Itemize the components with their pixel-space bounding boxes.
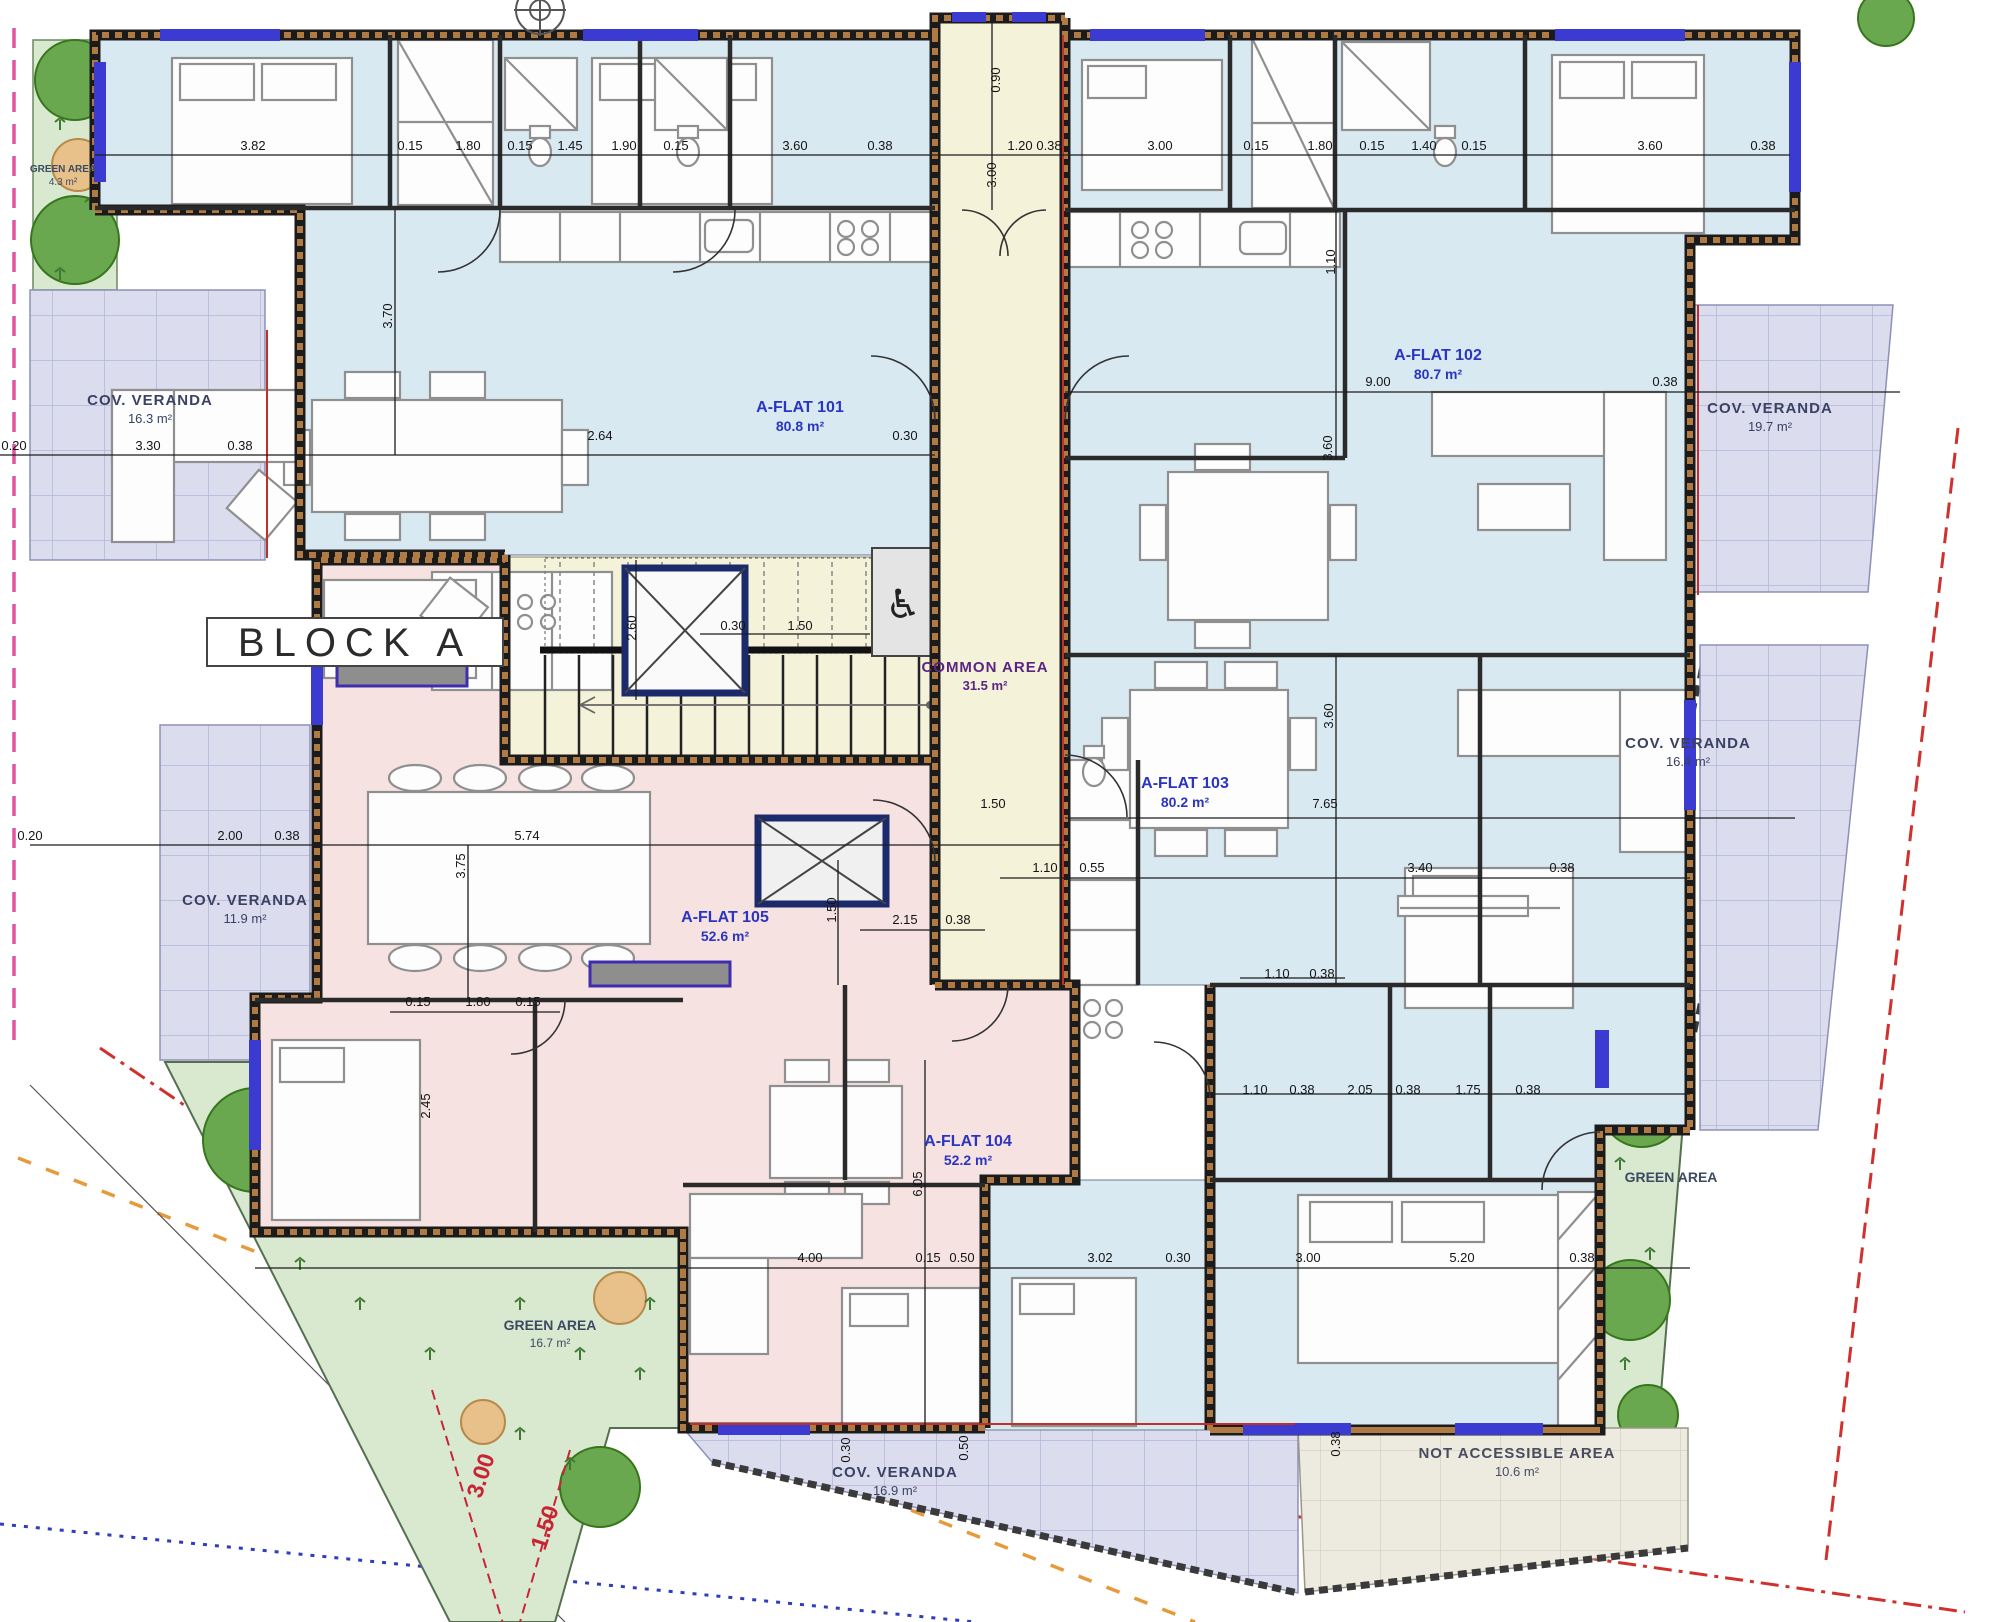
dimension-label: 0.15 — [915, 1250, 940, 1265]
dimension-label: 2.15 — [892, 912, 917, 927]
dimension-label: 1.20 — [1007, 138, 1032, 153]
dimension-label: 0.20 — [17, 828, 42, 843]
common-area-value: 31.5 m² — [963, 678, 1008, 693]
dimension-label: 3.60 — [1637, 138, 1662, 153]
boundary-red-right — [1826, 428, 1958, 1560]
veranda-bottom — [683, 1428, 1298, 1593]
flat-label: A-FLAT 104 — [924, 1133, 1012, 1150]
bed — [1298, 1195, 1560, 1363]
dimension-label: 0.38 — [1569, 1250, 1594, 1265]
dimension-label: 0.38 — [945, 912, 970, 927]
bed — [1552, 55, 1704, 233]
veranda-label: COV. VERANDA — [832, 1464, 958, 1481]
dimension-label: 0.38 — [1289, 1082, 1314, 1097]
dimension-label: 0.90 — [988, 67, 1003, 92]
dimension-label: 0.15 — [507, 138, 532, 153]
dimension-label: 5.20 — [1449, 1250, 1474, 1265]
flat-area-label: 80.2 m² — [1161, 794, 1210, 810]
dimension-label: 0.38 — [1652, 374, 1677, 389]
common-area-label: COMMON AREA — [921, 659, 1048, 676]
dimension-label: 1.45 — [557, 138, 582, 153]
dimension-label: 1.75 — [1455, 1082, 1480, 1097]
dimension-label: 0.15 — [515, 994, 540, 1009]
dimension-label: 0.50 — [949, 1250, 974, 1265]
veranda-top-right — [1690, 305, 1893, 592]
dimension-label: 2.00 — [217, 828, 242, 843]
dimension-label: 0.15 — [405, 994, 430, 1009]
dimension-label: 1.80 — [1307, 138, 1332, 153]
dimension-label: 0.38 — [1750, 138, 1775, 153]
dimension-label: 0.15 — [1243, 138, 1268, 153]
flat-label: A-FLAT 101 — [756, 399, 844, 416]
bed — [172, 58, 352, 204]
green-area-label: GREEN AREA — [1625, 1169, 1718, 1185]
dimension-label: 0.55 — [1079, 860, 1104, 875]
flat-area-label: 52.2 m² — [944, 1152, 993, 1168]
dining-table — [1140, 444, 1356, 648]
dimension-label: 3.00 — [1147, 138, 1172, 153]
dimension-label: 0.15 — [1359, 138, 1384, 153]
dimension-label: 3.60 — [782, 138, 807, 153]
dimension-label: 0.30 — [892, 428, 917, 443]
dimension-label: 1.80 — [465, 994, 490, 1009]
wardrobe — [1558, 1192, 1600, 1426]
green-area-label: GREEN AREA — [30, 164, 96, 175]
block-title-box: BLOCK A — [207, 618, 503, 666]
veranda-label: COV. VERANDA — [182, 892, 308, 909]
dimension-label: 0.30 — [838, 1437, 853, 1462]
dimension-label: 1.50 — [824, 897, 839, 922]
dining-table — [368, 765, 650, 971]
dimension-label: 0.38 — [1328, 1431, 1343, 1456]
dimension-label: 3.70 — [380, 303, 395, 328]
dimension-label: 0.38 — [1036, 138, 1061, 153]
dimension-label: 3.30 — [135, 438, 160, 453]
dimension-label: 9.00 — [1365, 374, 1390, 389]
dimension-label: 0.20 — [1, 438, 26, 453]
wardrobe — [398, 40, 493, 205]
dimension-label: 0.50 — [956, 1435, 971, 1460]
dimension-label: 0.15 — [663, 138, 688, 153]
dimension-label: 6.05 — [910, 1171, 925, 1196]
veranda-label: COV. VERANDA — [1707, 400, 1833, 417]
toilet — [1434, 126, 1456, 166]
dimension-label: 2.45 — [418, 1093, 433, 1118]
dimension-label: 0.15 — [1461, 138, 1486, 153]
veranda-area-value: 19.7 m² — [1748, 419, 1793, 434]
flat-area-label: 80.7 m² — [1414, 366, 1463, 382]
shower — [505, 58, 577, 130]
dimension-label: 3.40 — [1407, 860, 1432, 875]
dimension-label: 1.10 — [1323, 249, 1338, 274]
green-area-label: GREEN AREA — [504, 1317, 597, 1333]
dimension-label: 2.60 — [624, 615, 639, 640]
not-accessible-area-value: 10.6 m² — [1495, 1464, 1540, 1479]
bed — [272, 1040, 420, 1220]
wardrobe — [1252, 38, 1334, 208]
dimension-label: 3.00 — [984, 162, 999, 187]
flat-label: A-FLAT 105 — [681, 909, 769, 926]
veranda-area-value: 16.9 m² — [873, 1483, 918, 1498]
dimension-label: 0.38 — [274, 828, 299, 843]
dimension-label: 1.50 — [787, 618, 812, 633]
kitchen-counter — [500, 212, 935, 262]
dimension-label: 5.74 — [514, 828, 539, 843]
floor-plan-drawing: ♿ BLOCK A — [0, 0, 2000, 1622]
veranda-label: COV. VERANDA — [1625, 735, 1751, 752]
dimension-label: 3.82 — [240, 138, 265, 153]
bed — [1012, 1278, 1136, 1426]
dimension-label: 0.38 — [1395, 1082, 1420, 1097]
dimension-label: 3.00 — [1295, 1250, 1320, 1265]
dimension-label: 2.64 — [587, 428, 612, 443]
dimension-label: 1.40 — [1411, 138, 1436, 153]
green-area-value: 4.3 m² — [49, 177, 78, 188]
dimension-label: 0.30 — [1165, 1250, 1190, 1265]
dimension-label: 1.50 — [980, 796, 1005, 811]
veranda-right — [1700, 645, 1868, 1130]
wheelchair-icon: ♿ — [885, 583, 921, 627]
shower — [1342, 42, 1430, 130]
dimension-label: 1.10 — [1032, 860, 1057, 875]
veranda-area-value: 16.4 m² — [1666, 754, 1711, 769]
shower — [655, 58, 727, 130]
dimension-label: 2.05 — [1347, 1082, 1372, 1097]
dimension-label: 0.38 — [1309, 966, 1334, 981]
dimension-label: 3.60 — [1321, 703, 1336, 728]
not-accessible-label: NOT ACCESSIBLE AREA — [1418, 1445, 1615, 1462]
flat-area-label: 52.6 m² — [701, 928, 750, 944]
flat-area-label: 80.8 m² — [776, 418, 825, 434]
dimension-label: 0.38 — [227, 438, 252, 453]
dimension-label: 1.80 — [455, 138, 480, 153]
veranda-label: COV. VERANDA — [87, 392, 213, 409]
dimension-label: 3.75 — [453, 853, 468, 878]
floor-plan-page: ♿ BLOCK A — [0, 0, 2000, 1622]
dimension-label: 0.38 — [1549, 860, 1574, 875]
dining-table — [1102, 662, 1316, 856]
dimension-label: 1.10 — [1264, 966, 1289, 981]
flat-label: A-FLAT 103 — [1141, 775, 1229, 792]
flat-label: A-FLAT 102 — [1394, 347, 1482, 364]
dimension-label: 3.60 — [1320, 435, 1335, 460]
dimension-label: 0.30 — [720, 618, 745, 633]
dimension-label: 1.90 — [611, 138, 636, 153]
block-title-label: BLOCK A — [238, 621, 472, 665]
dimension-label: 4.00 — [797, 1250, 822, 1265]
dimension-label: 3.02 — [1087, 1250, 1112, 1265]
bed — [1082, 60, 1222, 190]
bed — [842, 1288, 980, 1424]
veranda-area-value: 11.9 m² — [223, 911, 267, 926]
kitchen-counter — [1068, 212, 1340, 267]
dimension-label: 0.38 — [1515, 1082, 1540, 1097]
dimension-label: 7.65 — [1312, 796, 1337, 811]
veranda-area-value: 16.3 m² — [128, 411, 173, 426]
dimension-label: 0.38 — [867, 138, 892, 153]
green-area-value: 16.7 m² — [530, 1336, 571, 1350]
dimension-label: 0.15 — [397, 138, 422, 153]
dimension-label: 1.10 — [1242, 1082, 1267, 1097]
